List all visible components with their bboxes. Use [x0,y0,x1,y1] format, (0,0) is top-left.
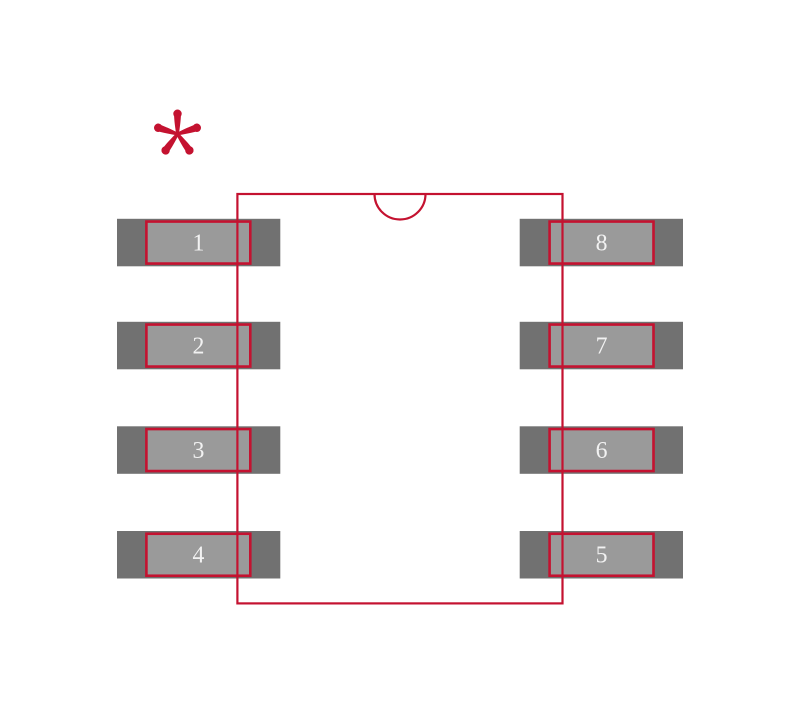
svg-text:3: 3 [192,438,204,464]
svg-text:8: 8 [596,230,608,256]
svg-text:5: 5 [596,543,608,569]
svg-text:2: 2 [192,333,204,359]
svg-text:1: 1 [192,230,204,256]
svg-text:6: 6 [596,438,608,464]
svg-text:7: 7 [596,333,608,359]
svg-text:4: 4 [192,543,204,569]
